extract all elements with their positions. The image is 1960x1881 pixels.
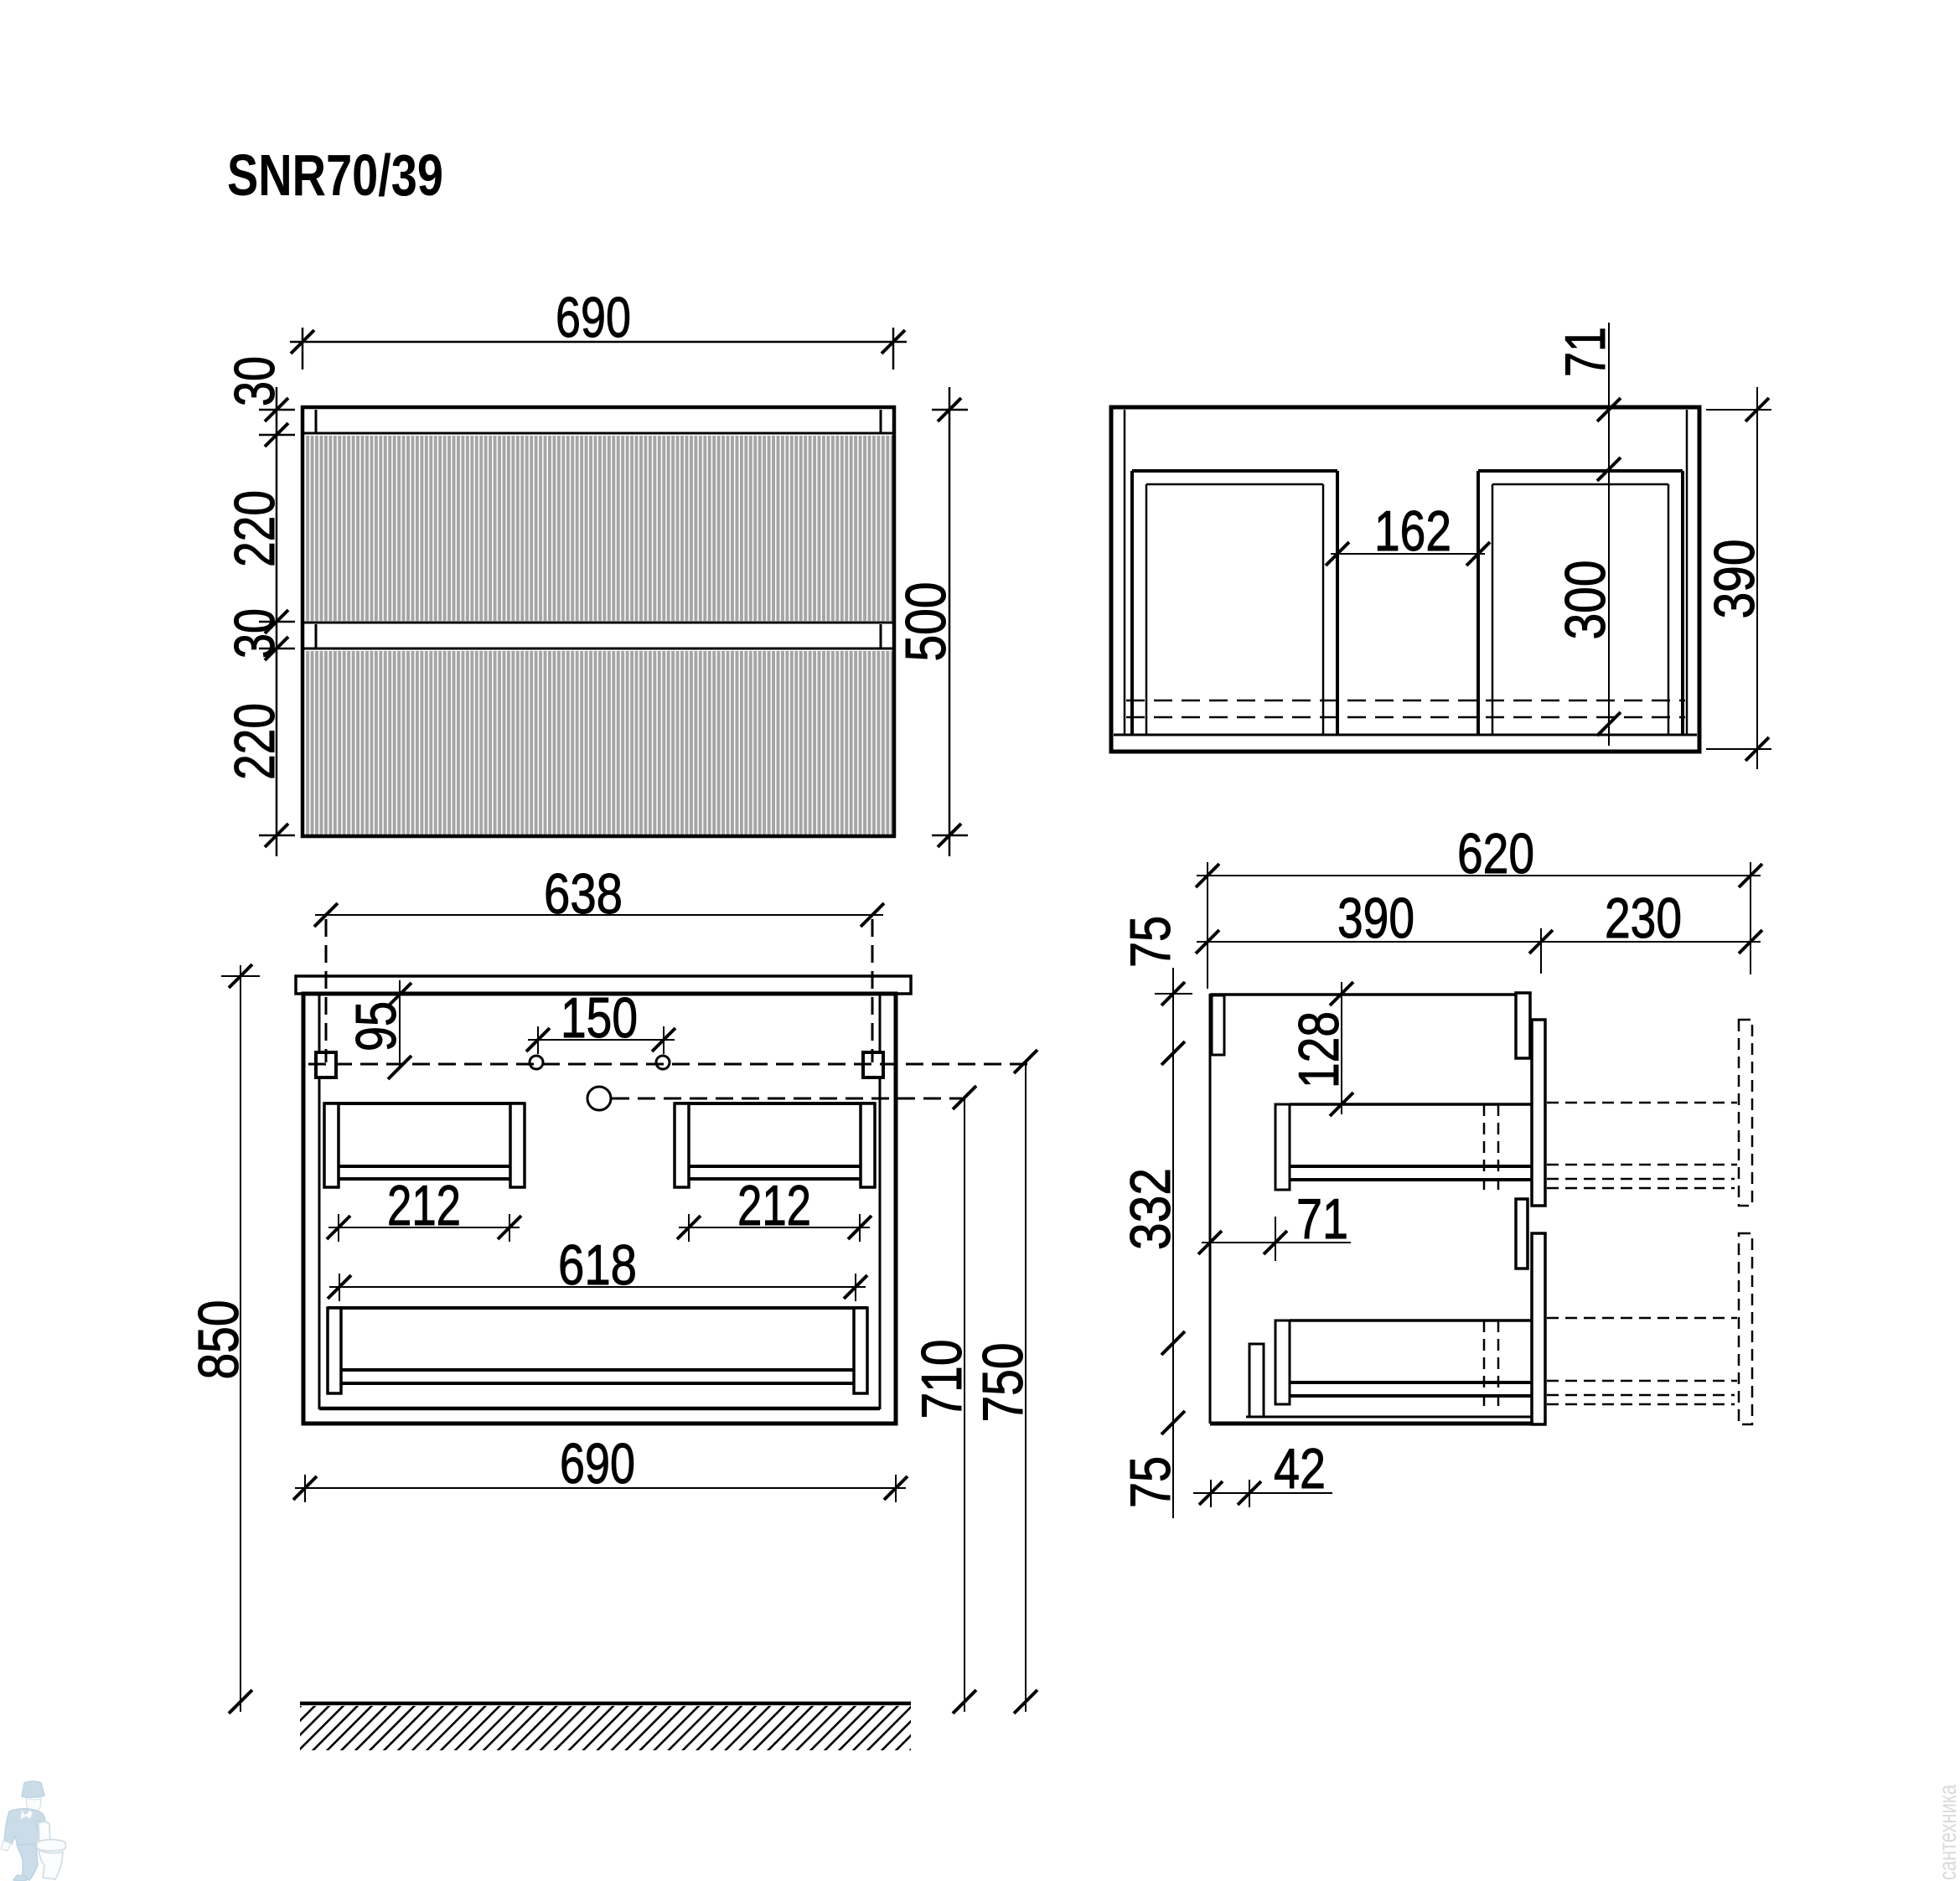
svg-text:750: 750 bbox=[971, 1343, 1035, 1423]
svg-text:300: 300 bbox=[1554, 561, 1617, 640]
svg-text:162: 162 bbox=[1374, 499, 1451, 563]
svg-text:128: 128 bbox=[1287, 1011, 1351, 1088]
svg-text:690: 690 bbox=[560, 1432, 635, 1496]
svg-text:390: 390 bbox=[1337, 886, 1414, 950]
svg-text:230: 230 bbox=[1605, 886, 1682, 950]
svg-text:618: 618 bbox=[558, 1233, 637, 1297]
svg-text:30: 30 bbox=[223, 608, 287, 659]
svg-text:710: 710 bbox=[910, 1340, 974, 1419]
svg-text:95: 95 bbox=[344, 1001, 408, 1052]
svg-text:150: 150 bbox=[561, 986, 638, 1050]
svg-text:638: 638 bbox=[544, 862, 623, 926]
svg-text:390: 390 bbox=[1703, 540, 1766, 619]
svg-text:620: 620 bbox=[1457, 822, 1534, 886]
svg-text:71: 71 bbox=[1296, 1187, 1348, 1251]
svg-text:42: 42 bbox=[1274, 1437, 1326, 1501]
svg-text:332: 332 bbox=[1119, 1168, 1182, 1250]
svg-text:сантехника: сантехника bbox=[1934, 1785, 1960, 1880]
svg-text:71: 71 bbox=[1554, 327, 1617, 377]
svg-text:75: 75 bbox=[1119, 916, 1182, 968]
svg-text:850: 850 bbox=[187, 1300, 251, 1380]
svg-text:212: 212 bbox=[387, 1174, 461, 1238]
svg-text:SNR70/39: SNR70/39 bbox=[227, 142, 443, 208]
svg-text:75: 75 bbox=[1119, 1456, 1182, 1508]
svg-text:690: 690 bbox=[556, 286, 631, 349]
svg-text:30: 30 bbox=[223, 356, 287, 406]
svg-text:220: 220 bbox=[223, 490, 287, 567]
svg-text:212: 212 bbox=[737, 1174, 811, 1238]
svg-text:220: 220 bbox=[223, 703, 287, 780]
svg-text:500: 500 bbox=[894, 582, 958, 662]
